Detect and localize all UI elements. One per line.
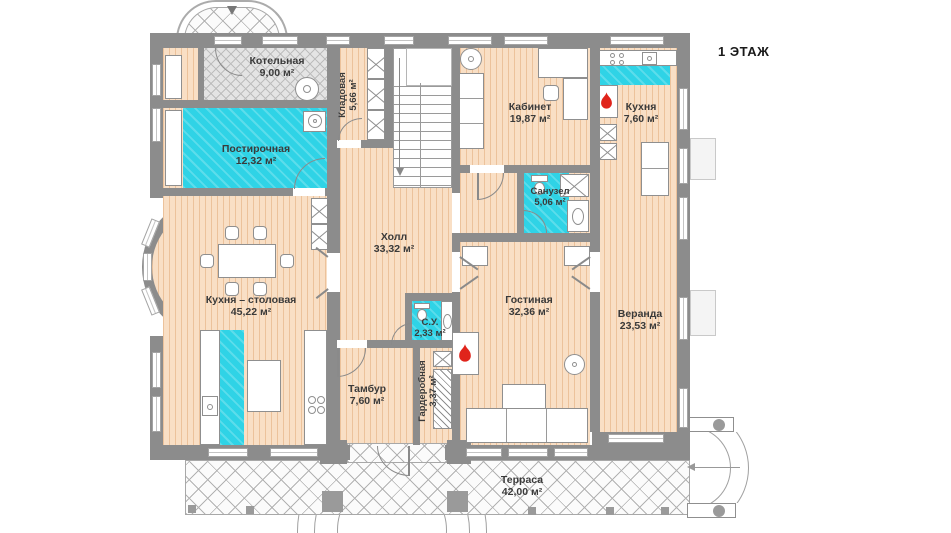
room-name: Гардеробная <box>417 360 428 421</box>
window <box>214 36 242 45</box>
living-cabinet <box>564 246 590 266</box>
room-label-hall: Холл 33,32 м² <box>374 231 414 256</box>
wall <box>590 33 600 242</box>
side-steps-post <box>713 505 725 517</box>
stove-burners-icon <box>610 60 615 65</box>
door-leaf <box>408 446 410 476</box>
door-opening <box>470 165 504 173</box>
toilet-icon <box>531 175 548 182</box>
kitchen-island <box>247 360 281 412</box>
room-label-kitchen: Кухня 7,60 м² <box>624 101 659 126</box>
staircase-arrow-line <box>399 58 400 170</box>
terrace-post <box>322 491 343 512</box>
room-area: 45,22 м² <box>206 306 297 318</box>
step-arc <box>337 515 447 533</box>
dining-chair <box>225 226 239 240</box>
room-area: 7,60 м² <box>348 395 386 407</box>
window <box>508 448 548 457</box>
room-label-living: Гостиная 32,36 м² <box>505 294 552 319</box>
stove-burners-icon <box>308 396 316 404</box>
room-name: Тамбур <box>348 383 386 395</box>
room-label-storage: Кладовая 5,66 м² <box>337 72 359 118</box>
room-area: 3,37 м² <box>428 360 439 421</box>
terrace-post-small <box>606 507 614 515</box>
room-area: 7,60 м² <box>624 113 659 125</box>
kitchen-dining-counter <box>304 330 327 445</box>
room-name: Кладовая <box>337 72 348 118</box>
room-label-boiler: Котельная 9,00 м² <box>250 55 305 80</box>
window <box>679 88 688 130</box>
room-name: С.У. <box>414 317 445 328</box>
stove-burners-icon <box>317 396 325 404</box>
laundry-closet <box>165 110 182 186</box>
window <box>262 36 298 45</box>
door-opening <box>293 188 325 196</box>
door-leaf <box>337 348 339 377</box>
floor-plan: 1 ЭТАЖ Котельная 9,00 м² Постирочная 12,… <box>0 0 951 533</box>
room-label-bathroom: Санузел 5,06 м² <box>530 186 569 208</box>
window <box>152 396 161 432</box>
study-sofa-seam <box>459 123 483 124</box>
window <box>679 148 688 184</box>
room-name: Гостиная <box>505 294 552 306</box>
direction-arrow-icon <box>396 168 404 176</box>
window <box>152 108 161 142</box>
kitchen-backsplash <box>598 66 670 85</box>
storage-shelf <box>367 79 385 110</box>
sink-icon <box>572 208 584 225</box>
room-name: Веранда <box>618 308 663 320</box>
direction-arrow-icon <box>227 6 237 15</box>
study-desk-return <box>563 78 588 120</box>
side-steps-railing <box>687 417 734 432</box>
boiler-shelf <box>165 55 182 99</box>
terrace-post-small <box>661 507 669 515</box>
kitchen-dining-wet-strip <box>220 330 244 445</box>
study-sofa <box>458 73 484 149</box>
door-opening <box>327 253 340 292</box>
room-label-kitchen-dining: Кухня – столовая 45,22 м² <box>206 294 297 319</box>
door-leaf <box>477 173 479 200</box>
dining-chair <box>280 254 294 268</box>
plan-title: 1 ЭТАЖ <box>718 44 769 59</box>
room-name: Терраса <box>501 474 543 486</box>
terrace-post <box>447 491 468 512</box>
side-steps-railing <box>687 503 736 518</box>
storage-shelf <box>367 110 385 140</box>
coffee-table <box>502 384 546 410</box>
kitchen-dining-counter <box>200 330 220 445</box>
terrace-deck <box>185 460 690 515</box>
stove-burners-icon <box>317 406 325 414</box>
staircase-divider <box>420 83 421 187</box>
window <box>270 448 318 457</box>
storage-shelf <box>367 48 385 79</box>
kitchen-bench-seam <box>642 168 668 169</box>
room-name: Санузел <box>530 186 569 197</box>
kitchen-cabinet <box>597 124 617 141</box>
window <box>208 448 248 457</box>
terrace-post-small <box>528 507 536 515</box>
room-area: 5,06 м² <box>530 197 569 208</box>
room-area: 2,33 м² <box>414 328 445 339</box>
terrace-post-small <box>188 505 196 513</box>
exit-arrow-line <box>694 467 740 468</box>
terrace-front-steps <box>290 515 495 533</box>
wall <box>405 293 460 301</box>
wall <box>150 445 350 460</box>
exterior-sill <box>690 290 716 336</box>
living-sofa-seam <box>506 409 507 442</box>
window <box>679 197 688 240</box>
room-label-study: Кабинет 19,87 м² <box>509 101 552 126</box>
kitchen-sink-drain <box>647 56 652 61</box>
washing-machine-dot <box>313 119 317 123</box>
room-label-laundry: Постирочная 12,32 м² <box>222 143 290 168</box>
room-name: Кухня – столовая <box>206 294 297 306</box>
window <box>679 388 688 428</box>
door-opening <box>337 340 367 348</box>
room-area: 33,32 м² <box>374 243 414 255</box>
dining-chair <box>253 226 267 240</box>
stove-burners-icon <box>308 406 316 414</box>
living-sofa <box>466 408 588 443</box>
room-name: Постирочная <box>222 143 290 155</box>
living-round-table-dot <box>572 362 577 367</box>
dining-chair <box>200 254 214 268</box>
wall <box>163 100 327 108</box>
window <box>384 36 414 45</box>
door-opening <box>337 140 361 148</box>
window <box>326 36 350 45</box>
window <box>466 448 502 457</box>
study-side-table-dot <box>468 56 474 62</box>
terrace-post-small <box>246 506 254 514</box>
room-area: 12,32 м² <box>222 155 290 167</box>
room-area: 32,36 м² <box>505 306 552 318</box>
study-chair <box>543 85 559 101</box>
room-name: Кухня <box>624 101 659 113</box>
bay-window <box>143 253 152 281</box>
window <box>610 36 664 45</box>
hall-wardrobe <box>311 224 328 250</box>
window <box>554 448 588 457</box>
wall <box>198 48 204 107</box>
room-area: 23,53 м² <box>618 320 663 332</box>
window <box>448 36 492 45</box>
staircase-upper-flight <box>406 48 452 86</box>
room-name: Холл <box>374 231 414 243</box>
window <box>152 64 161 96</box>
room-area: 19,87 м² <box>509 113 552 125</box>
stove-burners-icon <box>610 53 615 58</box>
room-area: 9,00 м² <box>250 67 305 79</box>
kitchen-cabinet <box>597 143 617 160</box>
door-opening <box>590 252 600 292</box>
living-cabinet <box>462 246 488 266</box>
room-label-veranda: Веранда 23,53 м² <box>618 308 663 333</box>
study-desk <box>538 48 588 78</box>
wall <box>385 48 393 144</box>
room-label-wardrobe: Гардеробная 3,37 м² <box>417 360 439 421</box>
dining-table <box>218 244 276 278</box>
room-label-terrace: Терраса 42,00 м² <box>501 474 543 499</box>
room-name: Кабинет <box>509 101 552 113</box>
stove-burners-icon <box>619 53 624 58</box>
exterior-sill <box>690 138 716 180</box>
direction-arrow-icon <box>687 463 695 471</box>
window <box>679 297 688 340</box>
room-area: 42,00 м² <box>501 486 543 498</box>
wall <box>452 233 600 242</box>
room-label-vestibule: Тамбур 7,60 м² <box>348 383 386 408</box>
sink-drain <box>207 404 213 410</box>
room-label-wc: С.У. 2,33 м² <box>414 317 445 339</box>
stove-burners-icon <box>619 60 624 65</box>
window <box>504 36 548 45</box>
living-sofa-seam <box>546 409 547 442</box>
room-name: Котельная <box>250 55 305 67</box>
room-area: 5,66 м² <box>348 72 359 118</box>
window <box>608 434 664 443</box>
boiler-tank-inner <box>303 85 311 93</box>
kitchen-bench <box>641 142 669 196</box>
hall-wardrobe <box>311 198 328 224</box>
study-sofa-seam <box>459 98 483 99</box>
window <box>152 352 161 388</box>
side-steps-post <box>713 419 725 431</box>
door-opening <box>452 252 460 292</box>
gas-flame-icon <box>458 344 472 363</box>
gas-flame-icon <box>600 92 613 110</box>
